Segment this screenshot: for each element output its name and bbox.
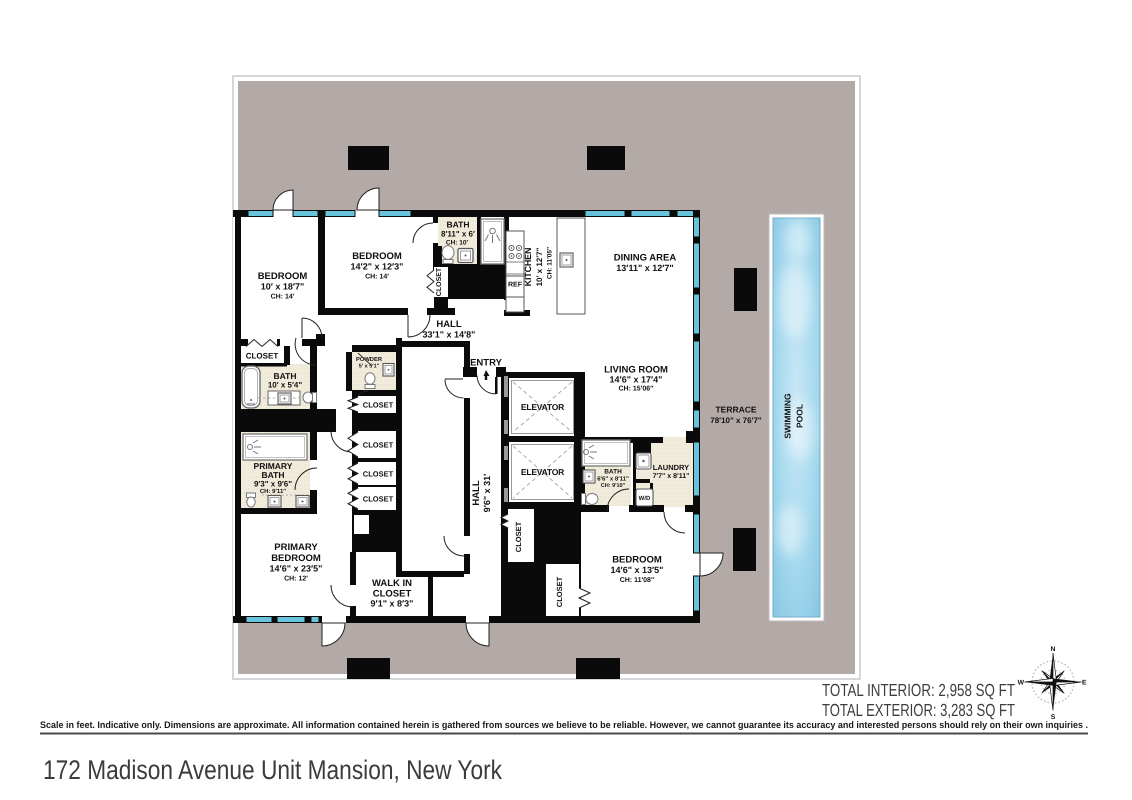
svg-text:CLOSET: CLOSET bbox=[436, 267, 443, 296]
svg-text:6′6" x 8′11": 6′6" x 8′11" bbox=[597, 476, 629, 483]
svg-text:9′6" x 31′: 9′6" x 31′ bbox=[482, 474, 492, 513]
svg-text:CH: 12′: CH: 12′ bbox=[284, 576, 308, 583]
svg-text:ENTRY: ENTRY bbox=[470, 358, 503, 369]
svg-text:9′1" x 8′3": 9′1" x 8′3" bbox=[371, 599, 414, 609]
svg-text:CLOSET: CLOSET bbox=[514, 521, 523, 552]
svg-text:TOTAL INTERIOR: 2,958 SQ FT: TOTAL INTERIOR: 2,958 SQ FT bbox=[822, 680, 1015, 700]
svg-text:9′3" x 9′6": 9′3" x 9′6" bbox=[254, 480, 292, 489]
svg-text:BEDROOM: BEDROOM bbox=[258, 271, 308, 282]
svg-text:N: N bbox=[1051, 646, 1056, 653]
svg-text:TOTAL EXTERIOR: 3,283 SQ FT: TOTAL EXTERIOR: 3,283 SQ FT bbox=[822, 700, 1015, 720]
svg-text:CH: 14′: CH: 14′ bbox=[365, 274, 389, 281]
svg-text:ELEVATOR: ELEVATOR bbox=[521, 467, 564, 477]
svg-text:ELEVATOR: ELEVATOR bbox=[521, 402, 564, 412]
svg-text:CLOSET: CLOSET bbox=[363, 495, 394, 504]
svg-text:BEDROOM: BEDROOM bbox=[271, 553, 321, 564]
svg-text:CH: 9′10″: CH: 9′10″ bbox=[601, 483, 626, 489]
svg-text:CH: 15′06″: CH: 15′06″ bbox=[619, 386, 655, 393]
svg-text:CH: 11′05″: CH: 11′05″ bbox=[547, 247, 554, 279]
svg-text:SWIMMING: SWIMMING bbox=[783, 393, 793, 439]
svg-text:14′6" x 13′5": 14′6" x 13′5" bbox=[611, 565, 664, 575]
svg-text:W: W bbox=[1018, 680, 1025, 687]
svg-text:CH: 11′08″: CH: 11′08″ bbox=[620, 577, 655, 584]
svg-text:PRIMARY: PRIMARY bbox=[274, 542, 318, 553]
svg-text:BATH: BATH bbox=[604, 469, 622, 476]
svg-text:5′ x 5′1": 5′ x 5′1" bbox=[359, 364, 380, 370]
svg-text:CLOSET: CLOSET bbox=[363, 441, 394, 450]
svg-text:CLOSET: CLOSET bbox=[246, 352, 279, 361]
svg-text:CH: 9′11″: CH: 9′11″ bbox=[260, 488, 286, 495]
svg-text:10′ x 18′7": 10′ x 18′7" bbox=[261, 282, 305, 292]
svg-text:CH: 10′: CH: 10′ bbox=[446, 240, 469, 247]
svg-text:8′11" x 6′: 8′11" x 6′ bbox=[441, 230, 475, 239]
svg-text:REF: REF bbox=[508, 282, 523, 289]
svg-text:TERRACE: TERRACE bbox=[715, 405, 756, 415]
svg-text:CLOSET: CLOSET bbox=[363, 401, 394, 410]
svg-text:10′ x 5′4": 10′ x 5′4" bbox=[268, 381, 303, 390]
svg-text:Scale in feet. Indicative only: Scale in feet. Indicative only. Dimensio… bbox=[40, 720, 1088, 731]
svg-text:E: E bbox=[1082, 680, 1087, 687]
svg-text:W/D: W/D bbox=[639, 495, 651, 502]
svg-text:7′7" x 8′11": 7′7" x 8′11" bbox=[653, 473, 690, 480]
svg-text:CLOSET: CLOSET bbox=[363, 470, 394, 479]
svg-text:172 Madison Avenue Unit Mansio: 172 Madison Avenue Unit Mansion, New Yor… bbox=[43, 755, 502, 785]
svg-text:BEDROOM: BEDROOM bbox=[352, 251, 402, 262]
svg-text:LAUNDRY: LAUNDRY bbox=[653, 463, 689, 472]
svg-text:BATH: BATH bbox=[274, 371, 297, 381]
svg-text:WALK IN: WALK IN bbox=[372, 578, 412, 589]
svg-text:DINING AREA: DINING AREA bbox=[614, 253, 677, 264]
svg-text:BATH: BATH bbox=[262, 470, 285, 480]
svg-text:KITCHEN: KITCHEN bbox=[523, 248, 533, 287]
svg-text:POWDER: POWDER bbox=[356, 356, 383, 363]
svg-text:33′1" x 14′8": 33′1" x 14′8" bbox=[423, 330, 476, 340]
svg-text:13′11" x 12′7": 13′11" x 12′7" bbox=[616, 263, 673, 273]
svg-text:78′10" x 76′7": 78′10" x 76′7" bbox=[710, 416, 762, 425]
svg-text:BEDROOM: BEDROOM bbox=[612, 555, 662, 566]
svg-text:BATH: BATH bbox=[447, 220, 470, 230]
svg-text:10′ x 12′7": 10′ x 12′7" bbox=[535, 247, 544, 286]
svg-text:14′2" x 12′3": 14′2" x 12′3" bbox=[351, 262, 404, 272]
svg-text:CH: 14′: CH: 14′ bbox=[271, 294, 295, 301]
svg-text:14′6" x 17′4": 14′6" x 17′4" bbox=[610, 375, 663, 385]
svg-text:14′6" x 23′5": 14′6" x 23′5" bbox=[270, 564, 323, 574]
svg-text:HALL: HALL bbox=[436, 319, 462, 330]
svg-text:CLOSET: CLOSET bbox=[555, 576, 564, 607]
svg-text:HALL: HALL bbox=[471, 480, 482, 506]
svg-text:POOL: POOL bbox=[795, 404, 805, 428]
